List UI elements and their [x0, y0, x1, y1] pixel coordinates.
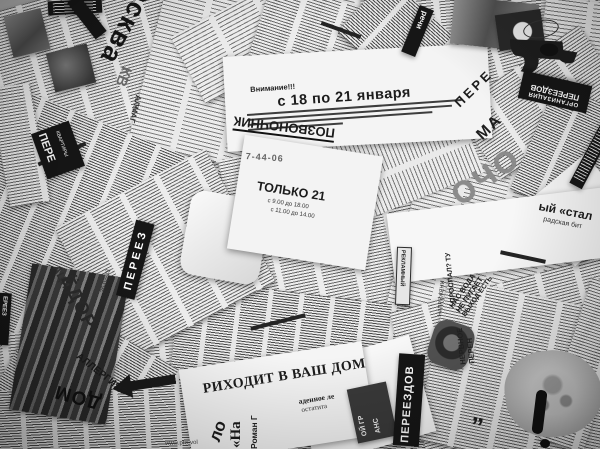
banner-pere: ПЕРЕ — [36, 132, 58, 164]
strip-text: РЕКЛАМНЫЙ — [399, 250, 406, 287]
text-roman: Роман Г — [249, 404, 259, 449]
banner-text: ПЕРЕЕЗДОВ — [399, 357, 417, 444]
text-na-quote: «На — [228, 402, 245, 448]
banner-kvartiry: КВАРТИРЫ — [54, 130, 69, 157]
scrap-text: АНС — [368, 395, 383, 434]
scrap-text: ОЙ ГР — [353, 392, 369, 436]
exclamation-dot — [540, 439, 550, 448]
strip-reklamny: РЕКЛАМНЫЙ — [395, 247, 412, 305]
revolver-photo — [503, 22, 592, 83]
photo-canvas: ОРГАНИЗАЦИЯ ПЕРЕЕЗДОВ речи ПЕРЕ КВАРТИРЫ… — [0, 0, 600, 449]
strip-text: ЕРЕЕЗ — [0, 296, 7, 316]
text-website: www.pro-vol — [165, 440, 198, 447]
